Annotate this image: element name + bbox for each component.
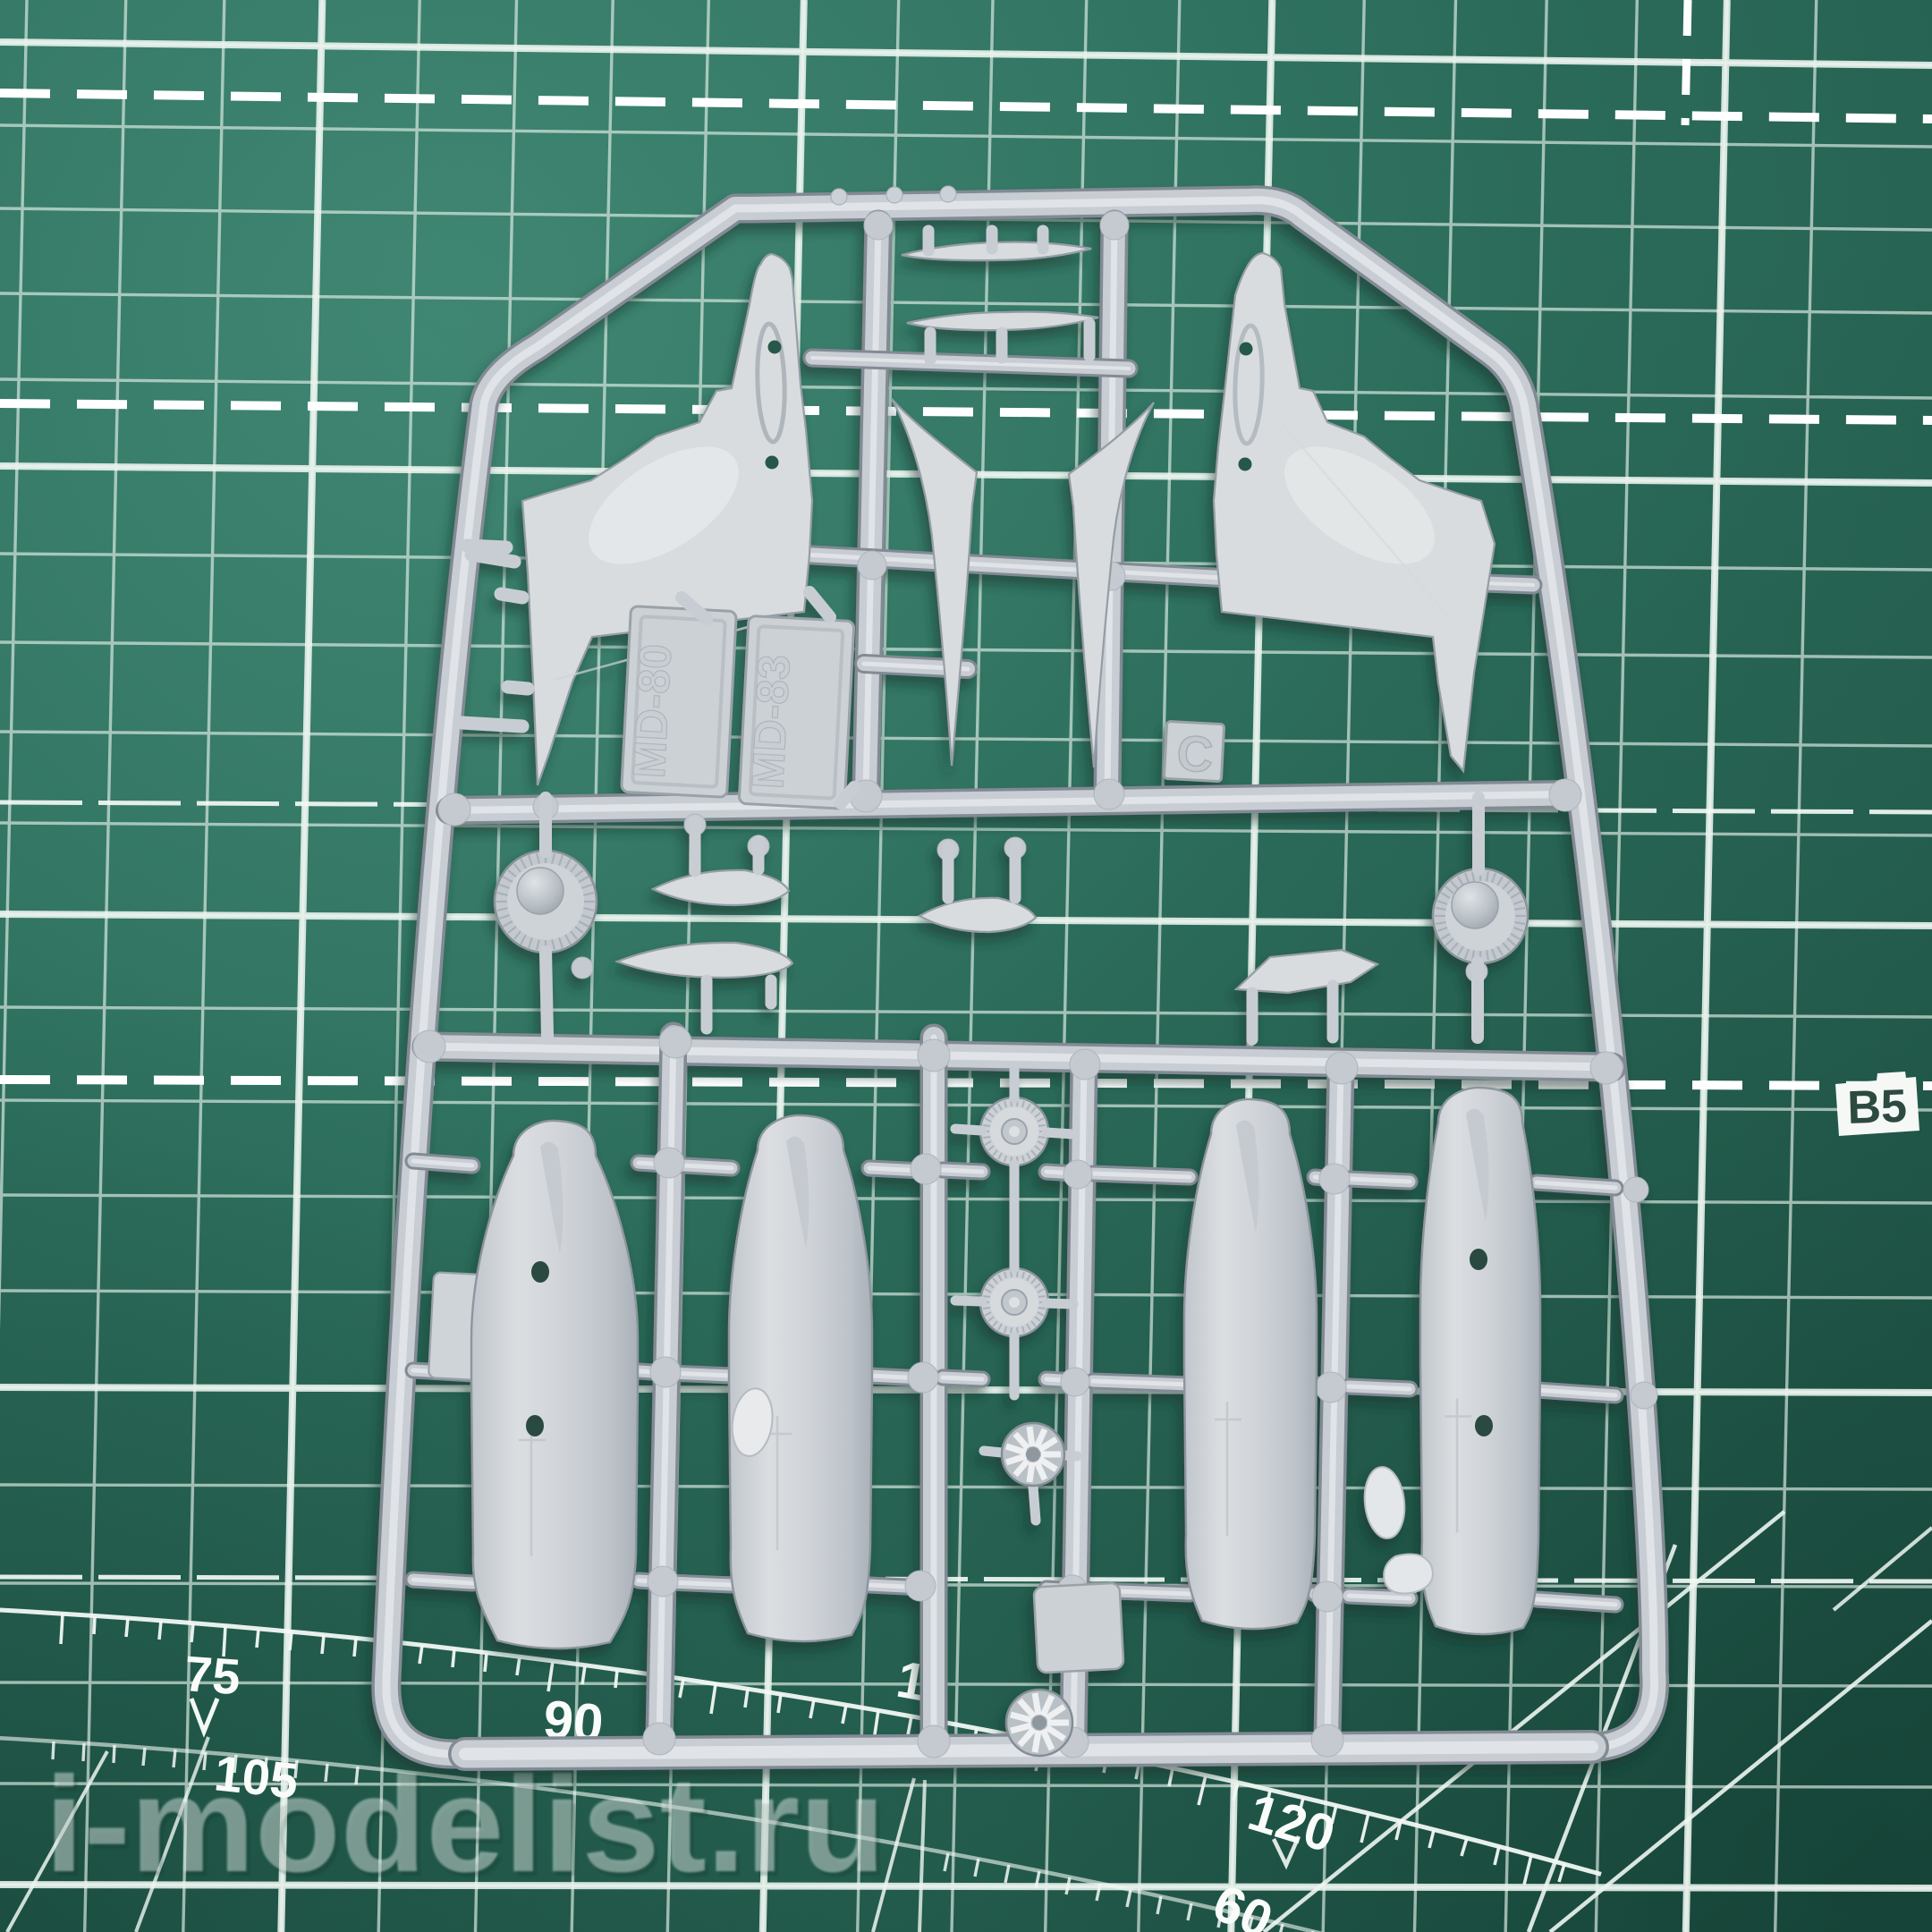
svg-text:MD-83: MD-83 xyxy=(742,654,800,791)
svg-text:B5: B5 xyxy=(1846,1080,1907,1134)
svg-text:i-modelist.ru: i-modelist.ru xyxy=(45,1749,885,1901)
svg-text:75: 75 xyxy=(182,1645,242,1705)
svg-text:C: C xyxy=(1175,724,1215,783)
svg-text:MD-80: MD-80 xyxy=(624,643,682,780)
